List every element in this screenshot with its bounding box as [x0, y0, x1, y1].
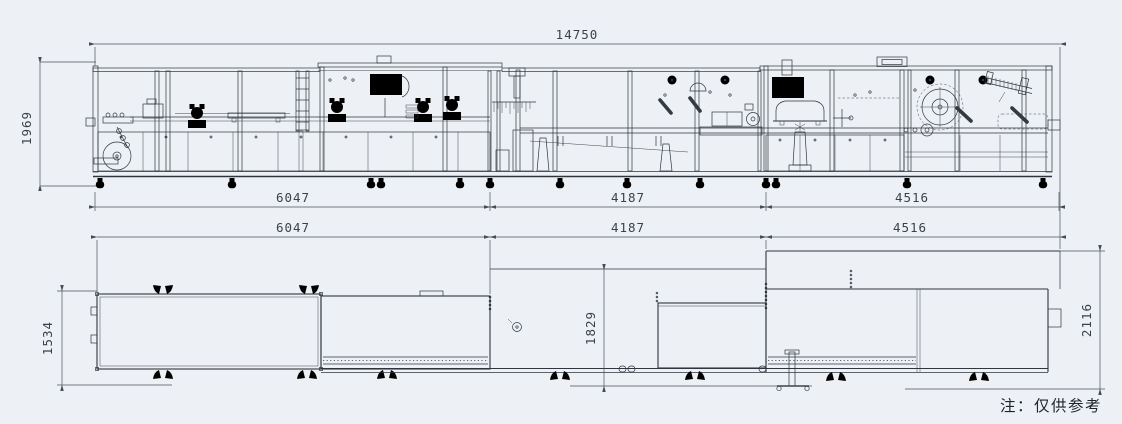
punch-unit	[492, 68, 536, 171]
dim-text-elev-seg-2: 4187	[611, 190, 645, 205]
reference-note: 注：仅供参考	[1000, 397, 1102, 415]
casters	[96, 178, 1047, 188]
dim-plan-depth-left: 1534	[40, 291, 172, 385]
dim-text-plan-seg-3: 4516	[893, 220, 927, 235]
hmi-blister	[370, 74, 418, 118]
dim-elevation-segments: 6047 4187 4516	[95, 190, 1059, 211]
dim-text-depth-middle: 1829	[583, 311, 598, 345]
dim-overall-length: 14750	[95, 27, 1060, 249]
dim-text-elev-seg-3: 4516	[895, 190, 929, 205]
machine-line-plan	[91, 251, 1061, 391]
dim-text-depth-left: 1534	[40, 321, 55, 355]
dim-text-overall-length: 14750	[556, 27, 599, 42]
plan-view: 6047 4187 4516 1534 1829 2116	[40, 220, 1105, 391]
link-conveyor	[520, 128, 762, 171]
dim-text-overall-height: 1969	[19, 111, 34, 145]
carton-magazine	[985, 71, 1032, 102]
turner-station	[660, 76, 762, 136]
dim-text-plan-seg-2: 4187	[611, 220, 645, 235]
dim-text-elev-seg-1: 6047	[276, 190, 310, 205]
dim-overall-height: 1969	[19, 62, 96, 186]
plan-second-footprint	[321, 291, 490, 379]
plan-blister-footprint	[91, 285, 323, 379]
elevation-view: 14750 1969 6047 4187 4516	[19, 27, 1060, 249]
technical-drawing-canvas: 14750 1969 6047 4187 4516	[0, 0, 1122, 424]
plan-link-section	[489, 269, 766, 368]
floor-stand	[777, 350, 809, 391]
plan-cartoner-footprint	[765, 251, 1061, 391]
plan-dimensions: 6047 4187 4516 1534 1829 2116	[40, 220, 1105, 389]
dim-plan-segments: 6047 4187 4516	[97, 220, 1060, 294]
dim-text-depth-right: 2116	[1079, 303, 1094, 337]
machine-line-elevation	[86, 56, 1060, 188]
dim-text-plan-seg-1: 6047	[276, 220, 310, 235]
carton-turret	[917, 76, 988, 131]
